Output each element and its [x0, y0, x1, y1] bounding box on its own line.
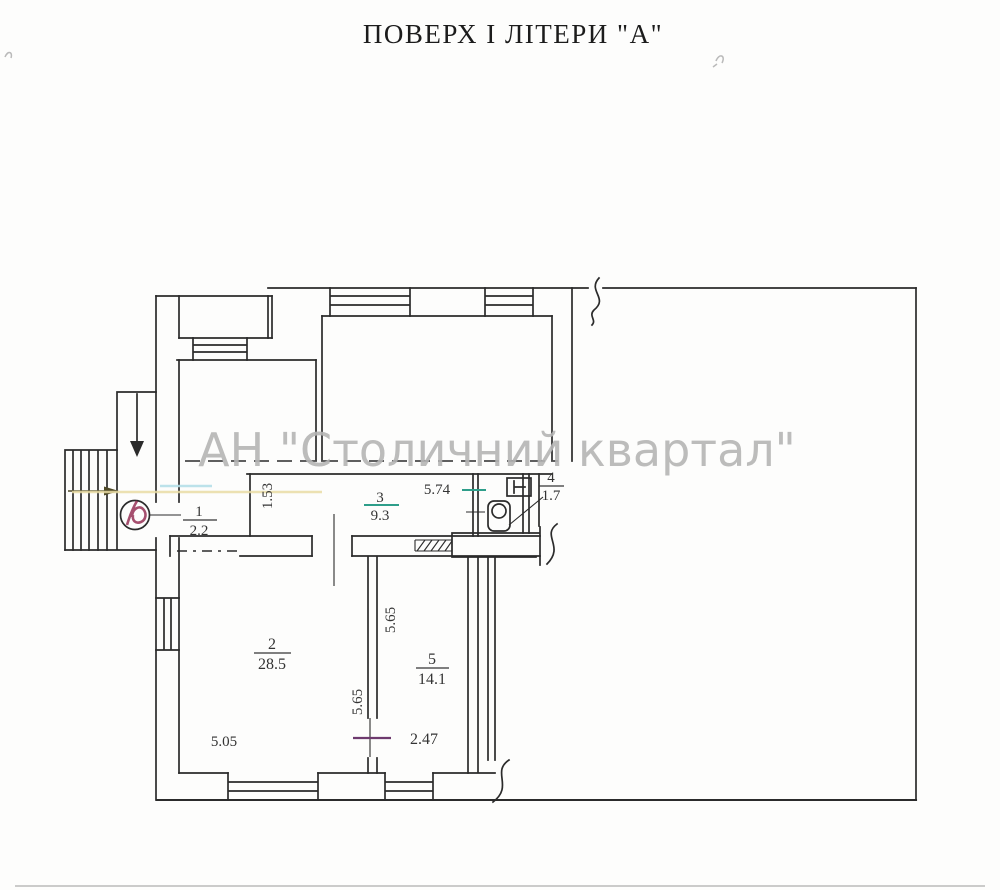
toilet-icon	[488, 501, 510, 531]
hatched-wall-segment	[415, 540, 452, 551]
page-title: ПОВЕРХ І ЛІТЕРИ "А"	[363, 19, 663, 49]
room-1-label: 1 2.2	[183, 504, 217, 539]
dim-corridor-length: 5.74	[424, 482, 451, 498]
water-heater-icon	[507, 478, 531, 496]
dim-room5-depth: 5.65	[383, 607, 399, 633]
watermark-text: АН "Столичний квартал"	[198, 423, 796, 477]
room-1-number: 1	[195, 504, 203, 520]
room-5-label: 5 14.1	[416, 651, 449, 688]
room-4-area: 1.7	[542, 488, 561, 504]
walls	[65, 288, 916, 800]
dim-room2-width: 5.05	[211, 734, 237, 750]
dim-room2-depth: 5.65	[350, 689, 366, 715]
entry-stairs	[65, 450, 117, 550]
dim-room5-width: 2.47	[410, 731, 438, 748]
floor-plan-svg: ПОВЕРХ І ЛІТЕРИ "А"	[0, 0, 1000, 890]
scanned-floor-plan-page: ПОВЕРХ І ЛІТЕРИ "А"	[0, 0, 1000, 890]
break-mark-bottom	[493, 760, 509, 802]
room-2-area: 28.5	[258, 656, 286, 673]
break-mark-top	[592, 278, 600, 325]
break-mark-middle	[547, 524, 557, 564]
room-1-area: 2.2	[190, 523, 209, 539]
room-5-area: 14.1	[418, 671, 446, 688]
window-top-left	[193, 338, 247, 360]
room-3-number: 3	[376, 490, 384, 506]
dim-corridor-width: 1.53	[260, 483, 276, 509]
window-bottom-2	[385, 773, 433, 800]
room-4-leader-line	[509, 497, 543, 525]
entry-arrow-down-icon	[130, 394, 144, 457]
room-3-label: 3 9.3	[364, 490, 399, 524]
room-2-number: 2	[268, 636, 276, 653]
room-5-number: 5	[428, 651, 436, 668]
stamp-scribble	[127, 501, 145, 525]
window-top-1	[330, 288, 410, 316]
window-bottom-1	[228, 773, 318, 800]
window-left	[156, 598, 179, 650]
windows	[156, 288, 533, 800]
dimension-labels: 5.74 1.53 5.65 5.65 5.05 2.47	[211, 482, 451, 750]
room-2-label: 2 28.5	[254, 636, 291, 673]
window-top-2	[485, 288, 533, 316]
break-marks	[493, 278, 599, 802]
room-3-area: 9.3	[371, 508, 390, 524]
approval-stamp	[121, 501, 182, 530]
